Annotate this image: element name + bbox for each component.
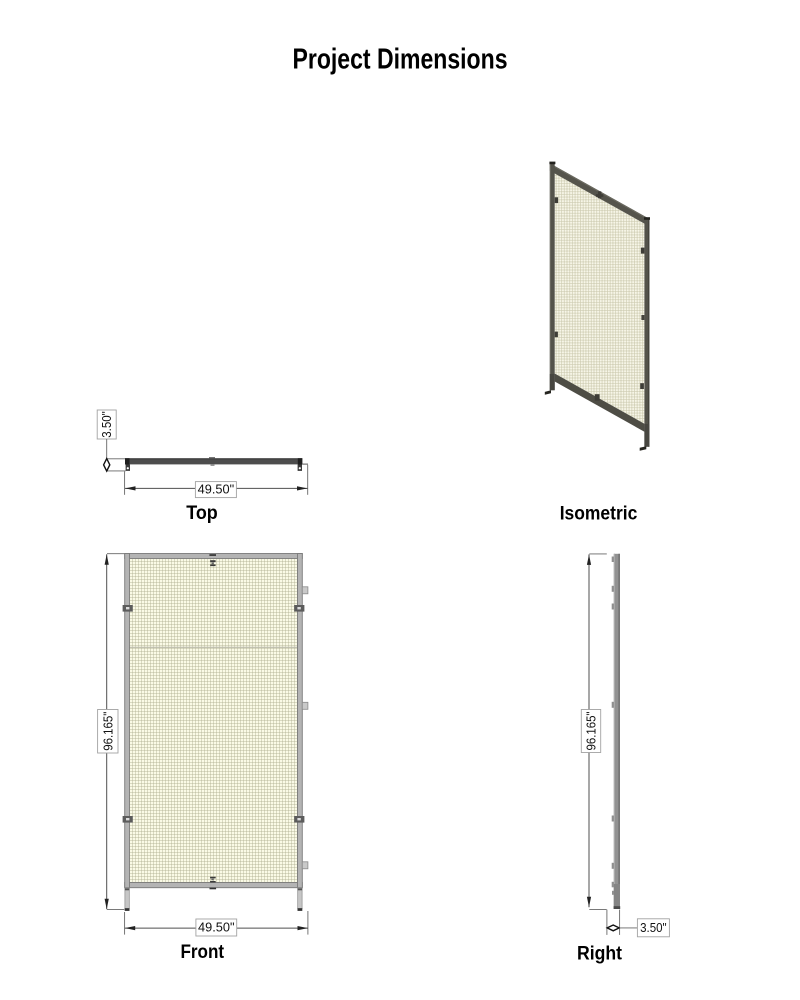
svg-text:3.50": 3.50" <box>99 411 114 438</box>
svg-text:49.50": 49.50" <box>198 920 235 935</box>
svg-text:49.50": 49.50" <box>198 481 235 496</box>
svg-text:Isometric: Isometric <box>560 503 638 525</box>
svg-text:Top: Top <box>186 502 218 524</box>
svg-text:96.165": 96.165" <box>584 711 599 750</box>
svg-text:3.50": 3.50" <box>640 920 667 935</box>
svg-text:96.165": 96.165" <box>100 711 115 750</box>
svg-text:Right: Right <box>577 943 622 965</box>
svg-text:Project Dimensions: Project Dimensions <box>293 44 508 76</box>
svg-text:Front: Front <box>180 941 224 963</box>
